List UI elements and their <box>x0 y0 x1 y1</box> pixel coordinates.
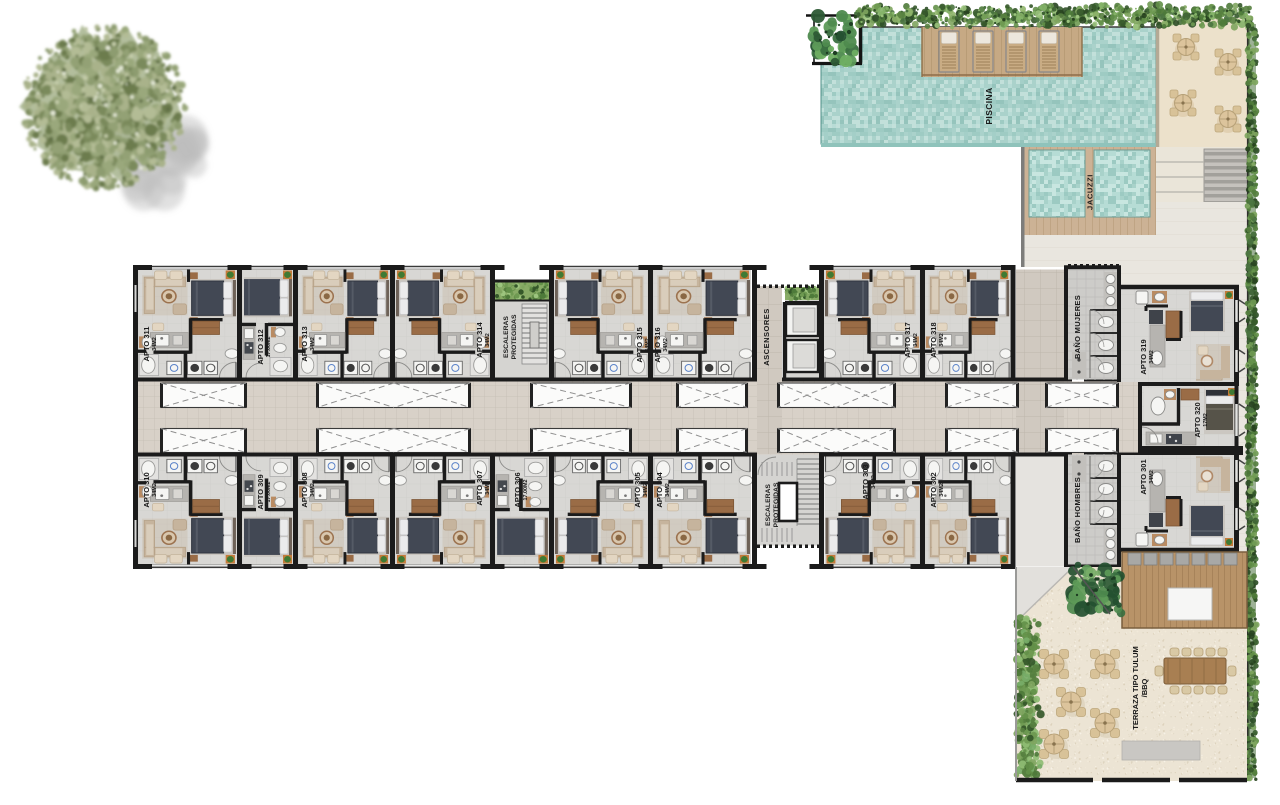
svg-text:34M2: 34M2 <box>871 475 877 489</box>
svg-text:APTO 312: APTO 312 <box>256 329 265 364</box>
svg-text:34M2: 34M2 <box>310 483 316 497</box>
svg-text:TERRAZA TIPO TULUM: TERRAZA TIPO TULUM <box>1131 646 1140 729</box>
svg-text:34M2: 34M2 <box>665 483 671 497</box>
svg-text:34M2: 34M2 <box>645 338 651 352</box>
svg-text:/BBQ: /BBQ <box>1140 678 1149 697</box>
svg-text:APTO 320: APTO 320 <box>1193 402 1202 437</box>
svg-text:ASCENSORES: ASCENSORES <box>762 308 771 366</box>
svg-text:34M2: 34M2 <box>913 333 919 347</box>
svg-text:APTO 314: APTO 314 <box>475 322 484 358</box>
svg-text:APTO 309: APTO 309 <box>256 474 265 509</box>
svg-text:APTO 306: APTO 306 <box>513 472 522 507</box>
svg-text:APTO 319: APTO 319 <box>1139 339 1148 374</box>
svg-text:APTO 316: APTO 316 <box>653 327 662 362</box>
svg-text:34M2: 34M2 <box>663 338 669 352</box>
svg-text:APTO 302: APTO 302 <box>929 472 938 507</box>
svg-text:APTO 305: APTO 305 <box>633 472 642 507</box>
svg-text:34M2: 34M2 <box>939 333 945 347</box>
svg-text:17.00M2: 17.00M2 <box>523 480 529 501</box>
svg-text:APTO 318: APTO 318 <box>929 322 938 357</box>
svg-text:34M2: 34M2 <box>485 481 491 495</box>
svg-text:34M2: 34M2 <box>1149 350 1155 364</box>
svg-text:JACUZZI: JACUZZI <box>1086 174 1095 210</box>
svg-text:17M2: 17M2 <box>1203 413 1209 427</box>
svg-text:PROTEGIDAS: PROTEGIDAS <box>511 314 518 359</box>
svg-text:PROTEGIDAS: PROTEGIDAS <box>773 482 780 527</box>
svg-text:APTO 304: APTO 304 <box>655 472 664 508</box>
svg-text:APTO 307: APTO 307 <box>475 470 484 505</box>
svg-text:APTO 317: APTO 317 <box>903 322 912 357</box>
svg-text:34M2: 34M2 <box>939 483 945 497</box>
svg-text:APTO 311: APTO 311 <box>142 327 151 362</box>
svg-text:BAÑO MUJERES: BAÑO MUJERES <box>1073 295 1082 359</box>
svg-text:ESCALERAS: ESCALERAS <box>503 316 510 358</box>
svg-text:ESCALERAS: ESCALERAS <box>765 484 772 526</box>
svg-text:APTO 315: APTO 315 <box>635 327 644 362</box>
svg-text:34M2: 34M2 <box>310 337 316 351</box>
svg-text:34M2: 34M2 <box>152 483 158 497</box>
svg-text:34M2: 34M2 <box>643 483 649 497</box>
svg-text:APTO 308: APTO 308 <box>300 472 309 507</box>
svg-text:34M2: 34M2 <box>152 337 158 351</box>
svg-text:BAÑO HOMBRES: BAÑO HOMBRES <box>1073 477 1082 543</box>
svg-text:17.00M2: 17.00M2 <box>266 482 272 503</box>
svg-text:34M2: 34M2 <box>485 333 491 347</box>
svg-text:34M2: 34M2 <box>1149 470 1155 484</box>
svg-text:APTO 313: APTO 313 <box>300 326 309 361</box>
svg-text:17.00M2: 17.00M2 <box>266 337 272 358</box>
svg-text:PISCINA: PISCINA <box>984 87 994 124</box>
svg-text:APTO 303: APTO 303 <box>861 464 870 499</box>
svg-text:APTO 301: APTO 301 <box>1139 459 1148 494</box>
svg-text:APTO 310: APTO 310 <box>142 472 151 507</box>
